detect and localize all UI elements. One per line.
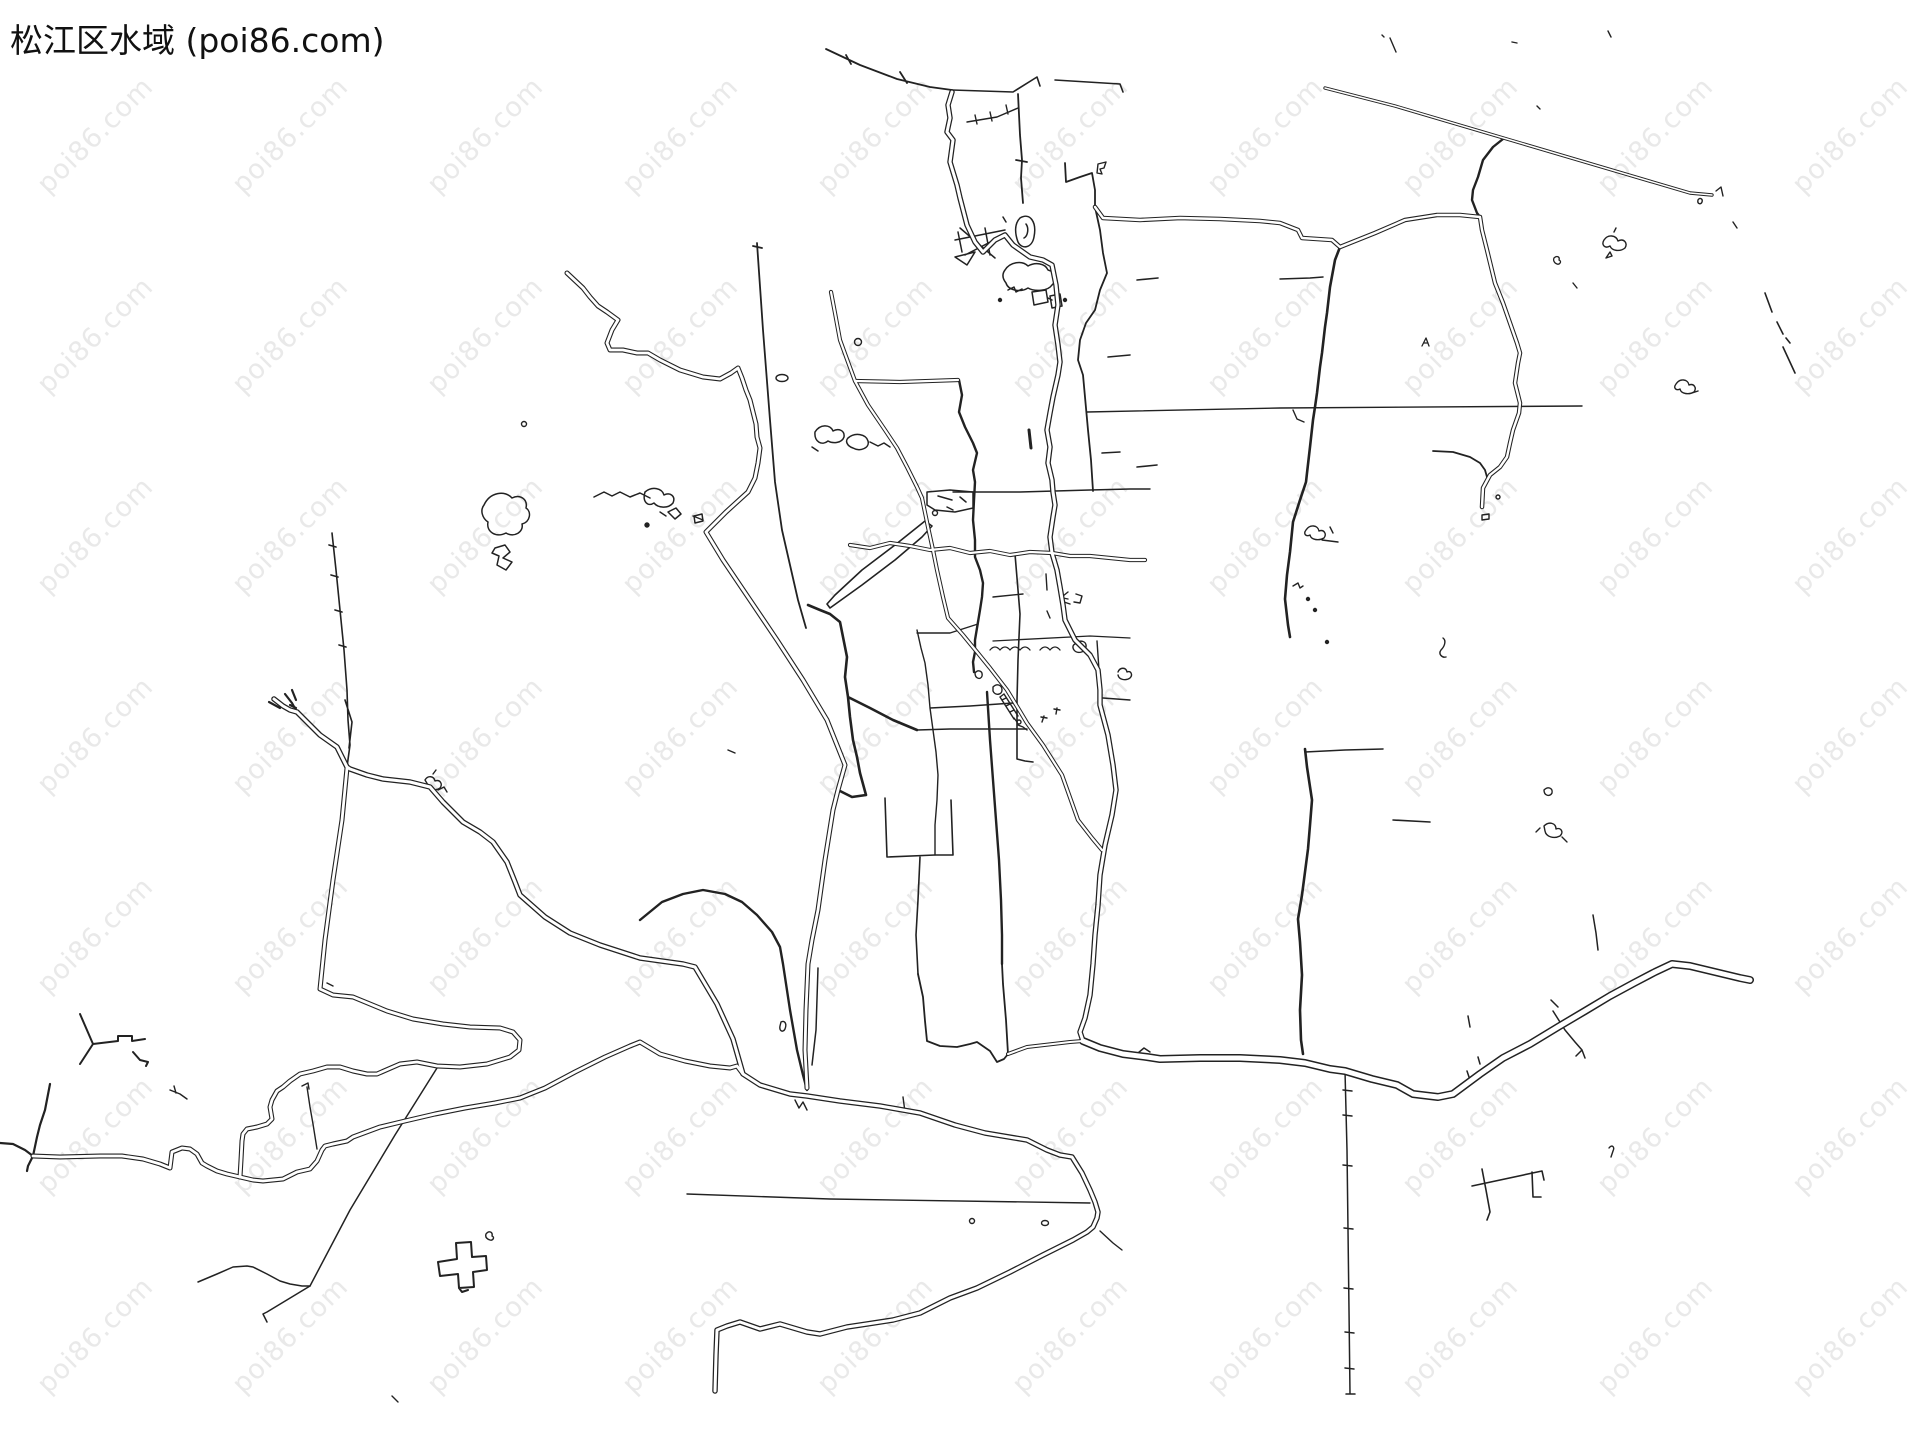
waterway-squiggle-s2 [198,1266,310,1286]
waterway-ne-branch-down [1285,247,1340,1054]
waterway-dragon-cluster [812,426,890,451]
waterway-line-l2 [687,1194,1090,1203]
waterway-y-network-topleft [80,1014,148,1066]
waterway-top-net-bc [952,77,1123,92]
waterway-ne-blob-pair [1675,380,1698,394]
waterway-tiny-pieces-center-top [660,507,953,520]
waterway-crab-cluster [1603,228,1626,258]
pond-ring-972-1221 [970,1219,975,1224]
waterway-link-east-west [1008,1041,1083,1054]
waterway-center-west-river [808,605,917,797]
waterway-lake-cloud [1003,263,1056,291]
waterway-lens-loop [827,521,932,608]
waterway-tile7-small-rect [1482,199,1702,520]
waterway-river-braided-left [640,890,807,1090]
pond-dot-1000-300 [999,299,1002,302]
waterway-top-right-diagonal-tick [1716,187,1723,196]
waterway-top-net-a [826,49,952,90]
waterway-stub-flags [170,983,333,1149]
waterway-second-vertical-802 [812,968,818,1065]
waterway-branch-se-bend [1100,1231,1122,1250]
waterway-river-fork-main-sweep [274,699,1098,1391]
waterway-thick-vdash [1029,430,1031,448]
pond-dot-1065-300 [1064,299,1067,302]
waterway-lakes-west-cluster [482,488,703,570]
page-title: 松江区水域 (poi86.com) [10,14,385,62]
pond-oval-1045-1223 [1042,1221,1049,1226]
waterway-line-l1 [1087,406,1582,422]
pond-dot-1315-610 [1314,609,1317,612]
waterway-fill-canal-c2 [831,292,1102,850]
pond-ring-858-342 [855,339,862,346]
waterway-center-small-marks [483,574,1082,840]
waterway-scallops-row [990,636,1130,650]
waterway-top-net-link [967,105,1018,124]
pond-ring-935-513 [933,511,938,516]
waterway-s-squiggle [1440,638,1446,657]
waterway-river-bottom-left [33,1042,743,1181]
waterway-west-line-lens [329,533,352,767]
waterway-blob-5 [1097,162,1106,174]
pond-dot-1327-642 [1326,641,1329,644]
pond-dot-524-424 [522,422,527,427]
pond-dot-647-525 [645,523,649,527]
waterway-ladder-box [1000,694,1018,722]
pond-oval-782-378 [776,375,788,382]
waterway-hook-bottom-ne [1433,451,1487,477]
waterway-top-right-diagonal [1325,88,1712,195]
waterway-ne-dashes [1102,278,1795,822]
waterway-long-vertical-se [1343,1071,1355,1394]
waterway-fill-main-river [947,92,1116,1041]
pond-dot-1498-497 [1496,495,1500,499]
waterway-squares-structure [918,964,1008,1062]
waterway-rect-lines-center [917,624,1018,855]
waterway-top-net-vertical [1016,94,1027,203]
waterway-right-cluster-530 [1293,526,1338,588]
waterway-duck-blobs [1536,788,1567,842]
waterway-square-center [885,798,953,974]
waterway-straight-canal [753,243,806,628]
waterway-ne-river-j1 [1472,139,1503,217]
waterway-canal-c2 [831,292,1102,850]
waterway-big-river-east [1083,964,1750,1097]
waterway-fill-big-river-east [1083,964,1750,1097]
waterway-misc-bottom-marks [392,1021,1614,1402]
waterway-cross-polygon [438,1242,487,1292]
waterway-fill-nw-river-diagonal [567,273,845,1088]
pond-dot-1308-599 [1307,598,1310,601]
pond-ring-1019-722 [1017,720,1021,724]
waterway-tiny-marks-top [1382,31,1737,288]
waterway-lake-ring [1016,216,1035,247]
waterway-f-structure [1472,1169,1544,1220]
waterways-map [0,0,1920,1444]
